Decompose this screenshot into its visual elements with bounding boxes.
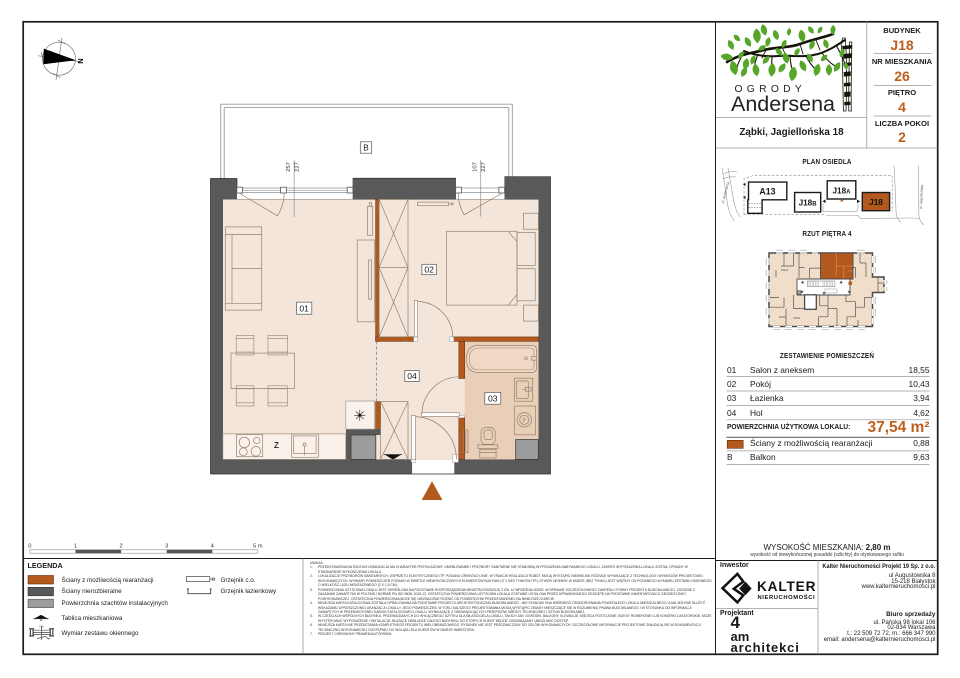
svg-text:N: N — [76, 58, 85, 63]
svg-text:4: 4 — [211, 544, 215, 550]
svg-text:01: 01 — [299, 304, 309, 314]
svg-text:101: 101 — [39, 624, 44, 628]
svg-text:1: 1 — [74, 544, 77, 550]
svg-text:03: 03 — [488, 394, 498, 404]
svg-text:227: 227 — [294, 162, 300, 172]
svg-text:B: B — [363, 144, 369, 153]
svg-text:J18: J18 — [869, 198, 883, 207]
svg-text:2: 2 — [119, 544, 122, 550]
svg-text:227: 227 — [481, 162, 487, 172]
svg-text:257: 257 — [286, 162, 292, 172]
svg-text:ul. Andersena: ul. Andersena — [721, 182, 731, 204]
svg-text:02: 02 — [424, 265, 434, 275]
svg-text:5 m: 5 m — [253, 544, 263, 550]
svg-text:04: 04 — [407, 371, 417, 381]
svg-text:A13: A13 — [759, 187, 775, 197]
svg-text:3: 3 — [165, 544, 168, 550]
svg-text:0: 0 — [28, 544, 31, 550]
svg-text:ul. Jagiellońska: ul. Jagiellońska — [919, 185, 924, 210]
svg-text:107: 107 — [473, 162, 479, 172]
svg-text:Z: Z — [274, 441, 279, 450]
